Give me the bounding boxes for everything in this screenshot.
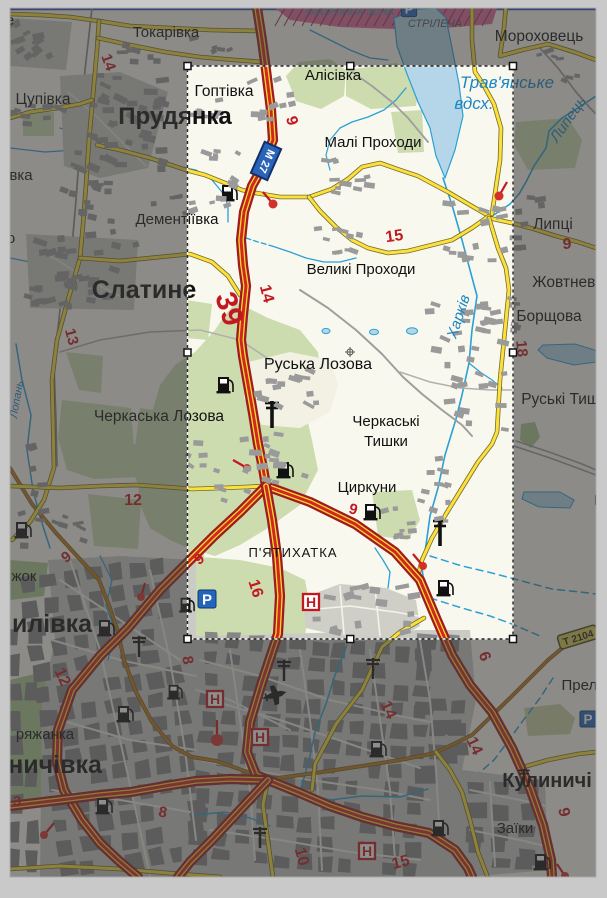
svg-text:Циркуни: Циркуни	[338, 479, 397, 496]
svg-text:H: H	[306, 594, 316, 610]
svg-text:Руська Лозова: Руська Лозова	[264, 356, 372, 373]
svg-text:15: 15	[384, 227, 404, 246]
svg-text:Тишки: Тишки	[364, 433, 408, 450]
svg-text:Малі Проходи: Малі Проходи	[324, 134, 421, 151]
svg-text:P: P	[202, 592, 212, 609]
svg-text:вдсх.: вдсх.	[454, 94, 493, 113]
svg-text:Гоптівка: Гоптівка	[195, 83, 254, 100]
svg-text:Черкаські: Черкаські	[352, 413, 419, 430]
svg-text:П'ЯТИХАТКА: П'ЯТИХАТКА	[248, 545, 337, 560]
svg-text:Великі Проходи: Великі Проходи	[307, 261, 416, 278]
